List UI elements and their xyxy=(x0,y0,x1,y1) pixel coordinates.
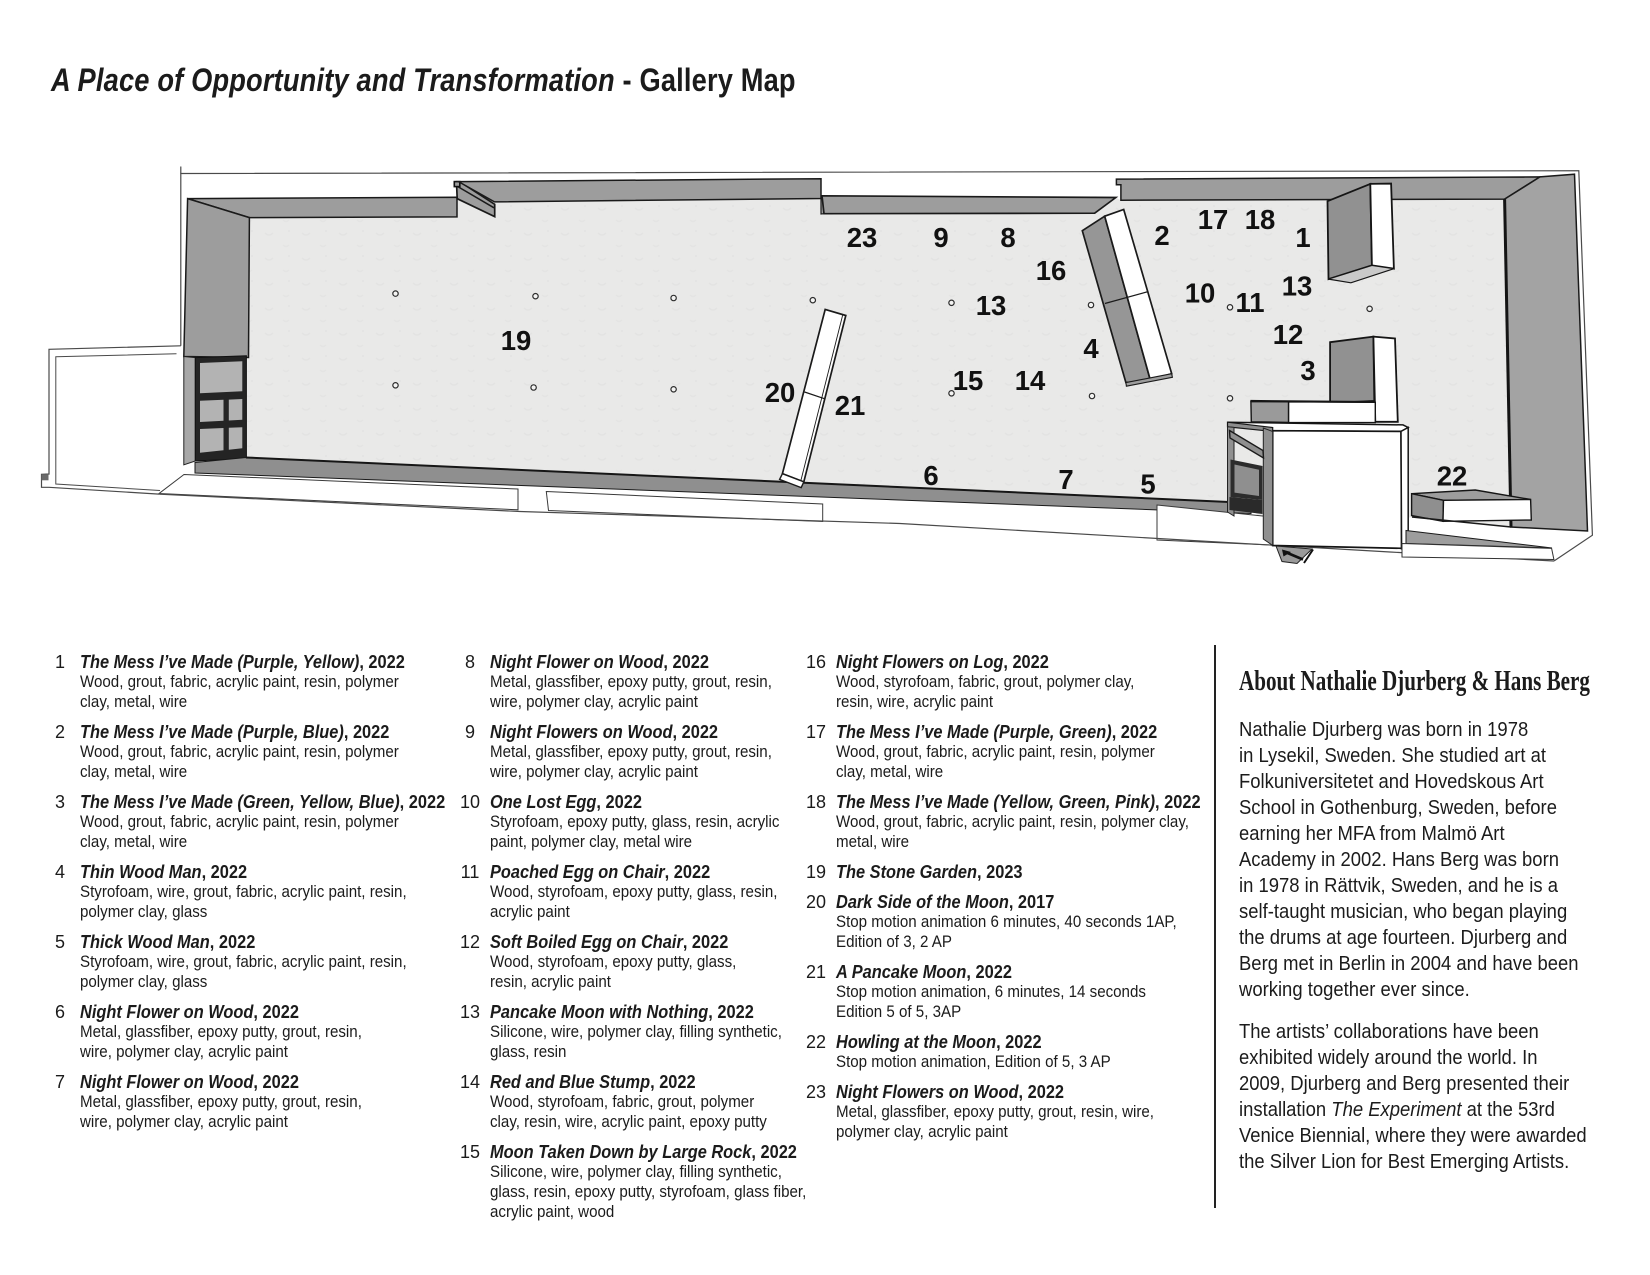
svg-text:17: 17 xyxy=(1198,204,1229,235)
svg-text:12: 12 xyxy=(1273,319,1304,350)
svg-text:18: 18 xyxy=(1245,204,1276,235)
svg-text:9: 9 xyxy=(933,222,948,253)
svg-text:15: 15 xyxy=(953,365,984,396)
svg-text:20: 20 xyxy=(765,377,796,408)
svg-text:13: 13 xyxy=(1282,271,1313,302)
svg-text:7: 7 xyxy=(1058,464,1073,495)
svg-text:5: 5 xyxy=(1140,469,1155,500)
svg-text:3: 3 xyxy=(1300,355,1315,386)
svg-text:23: 23 xyxy=(847,222,878,253)
svg-text:11: 11 xyxy=(1235,287,1264,318)
svg-text:10: 10 xyxy=(1185,278,1216,309)
svg-text:13: 13 xyxy=(976,290,1007,321)
svg-text:21: 21 xyxy=(835,390,866,421)
svg-text:22: 22 xyxy=(1437,461,1468,492)
svg-text:8: 8 xyxy=(1000,222,1015,253)
svg-text:6: 6 xyxy=(923,460,938,491)
svg-text:4: 4 xyxy=(1083,333,1099,364)
svg-text:2: 2 xyxy=(1154,220,1169,251)
svg-text:19: 19 xyxy=(501,325,532,356)
svg-text:1: 1 xyxy=(1295,222,1310,253)
svg-text:14: 14 xyxy=(1015,365,1046,396)
svg-text:16: 16 xyxy=(1036,255,1067,286)
